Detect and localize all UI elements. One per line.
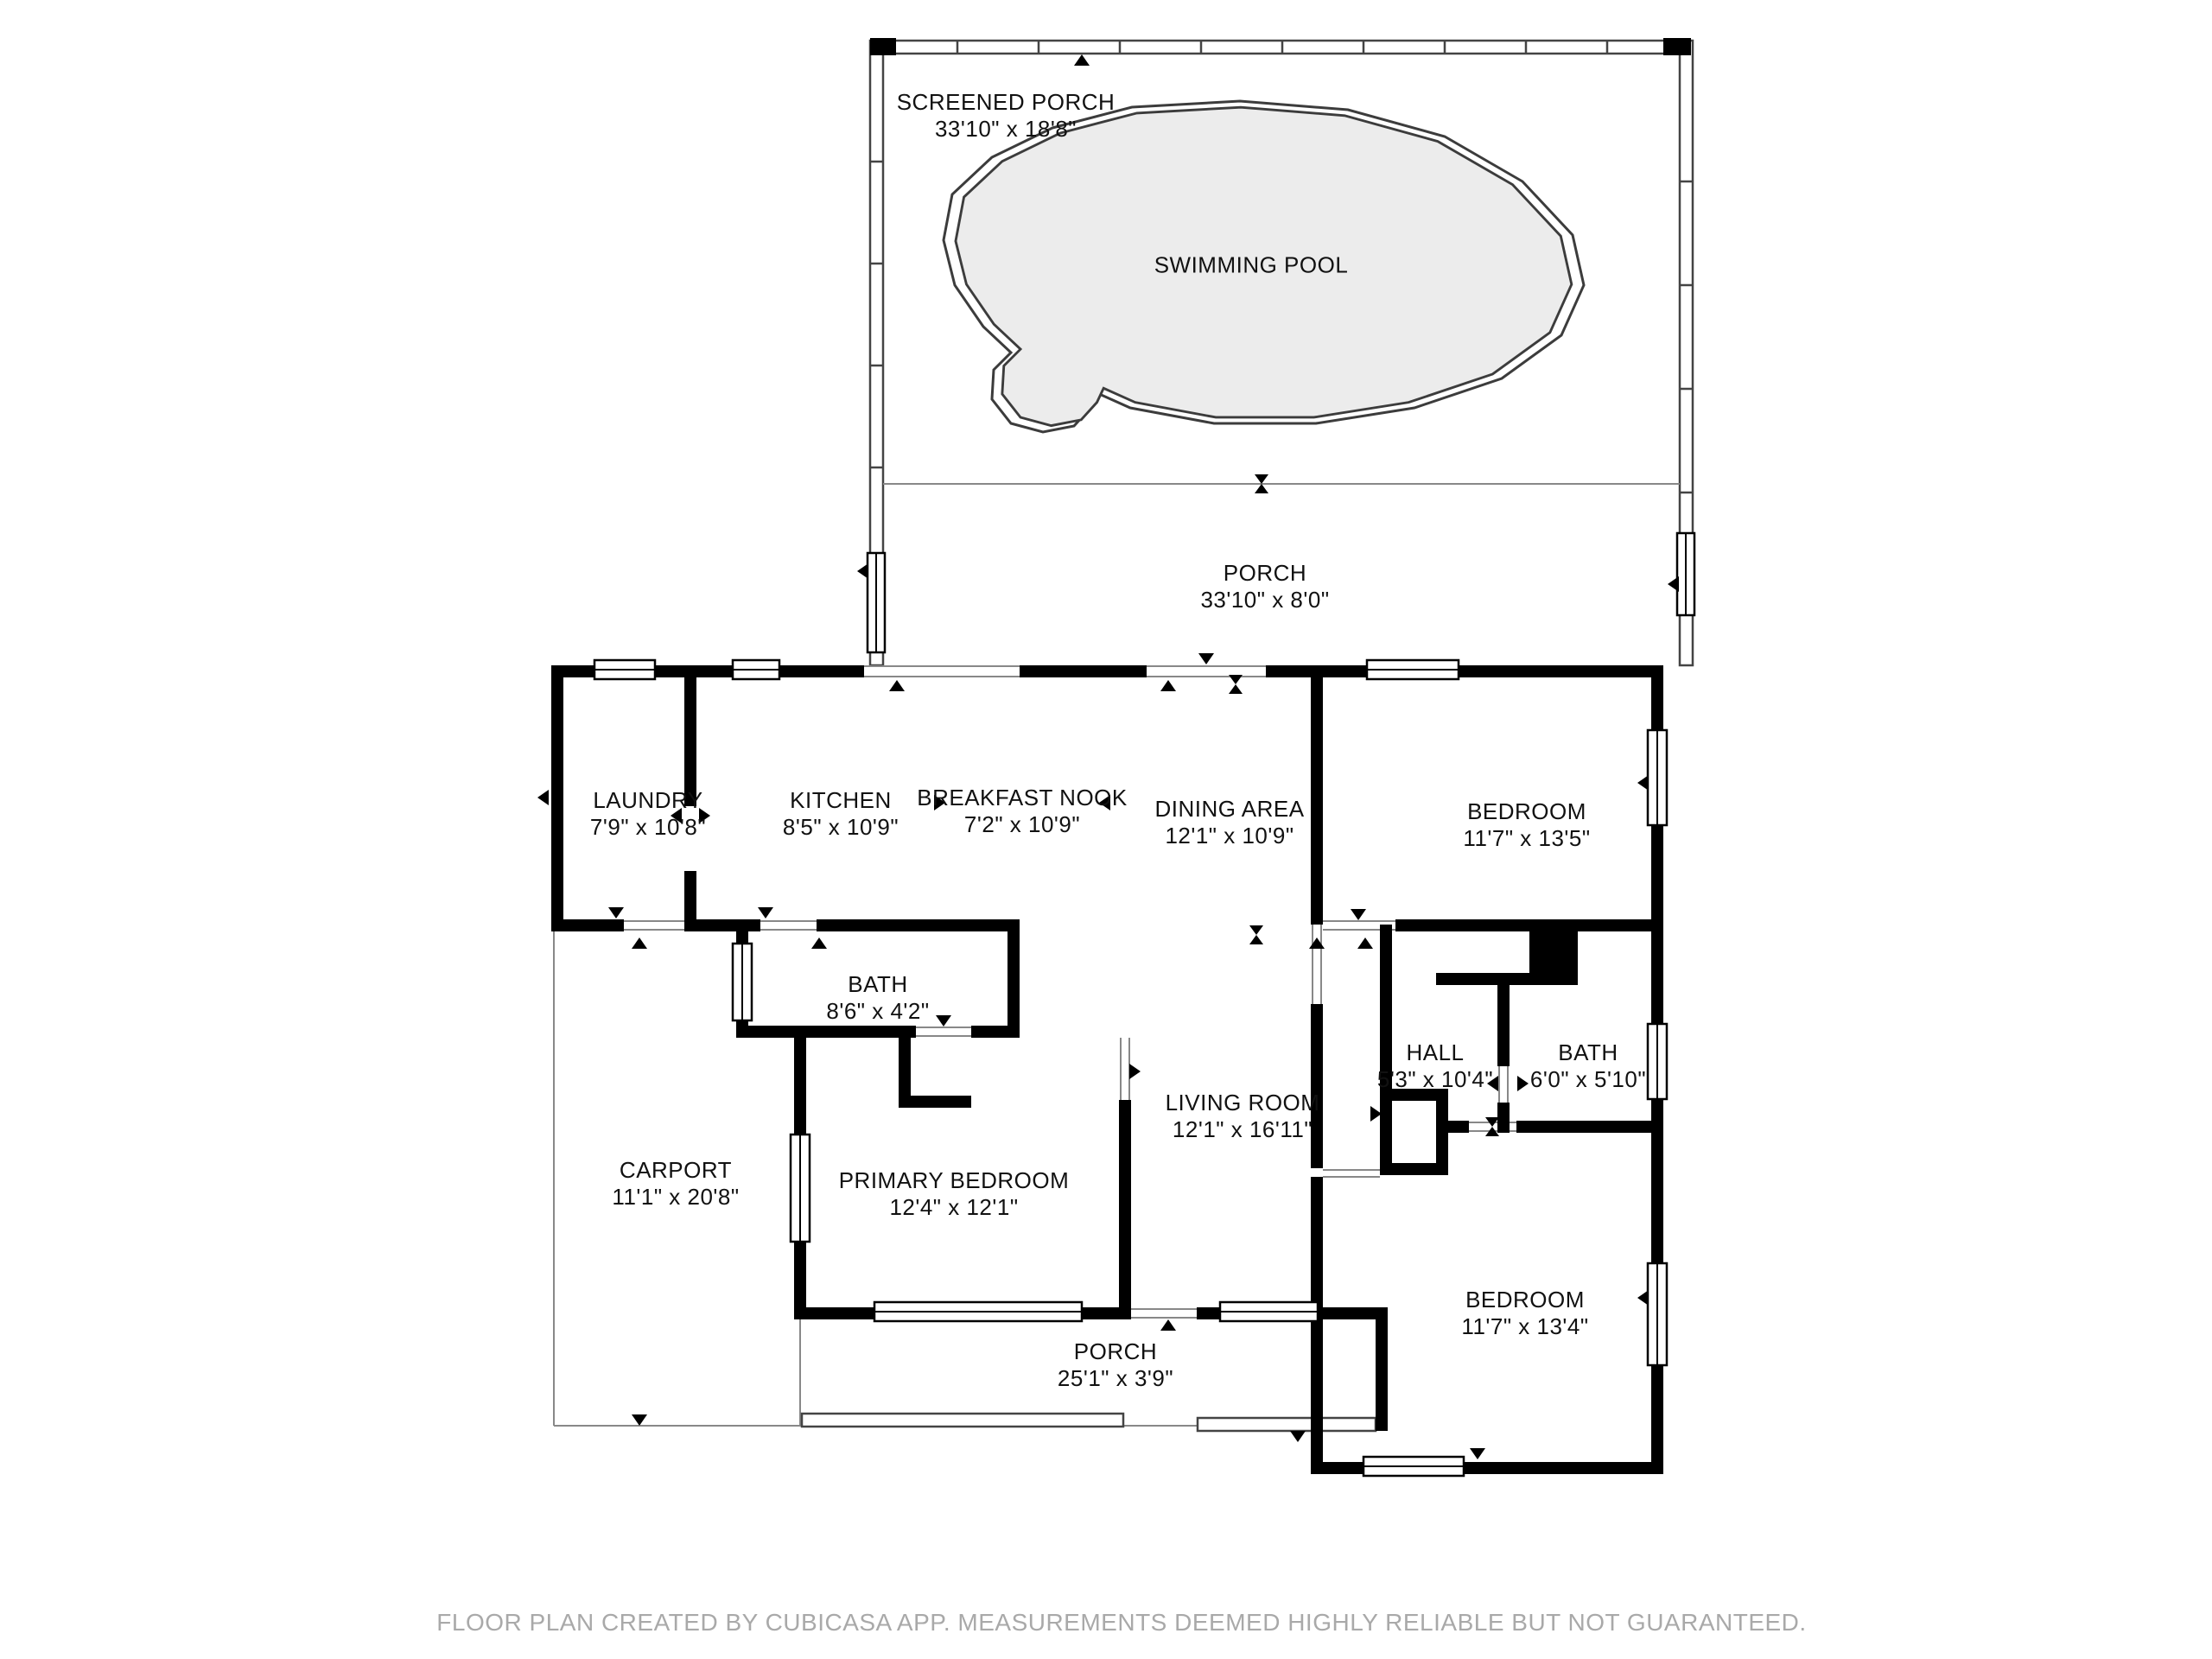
room-name: SWIMMING POOL (1154, 252, 1349, 279)
room-label-laundry: LAUNDRY 7'9" x 10'8" (590, 787, 706, 841)
door-arrow-icon (632, 938, 647, 949)
room-name: PORCH (1058, 1338, 1173, 1365)
door-arrow-icon (608, 907, 624, 918)
room-dims: 33'10" x 18'8" (897, 116, 1116, 143)
door-arrow-icon (1637, 1290, 1649, 1306)
room-dims: 11'1" x 20'8" (612, 1184, 739, 1211)
door-arrow-icon (811, 938, 827, 949)
double-door-icon (1249, 925, 1263, 944)
room-label-bedroom-se: BEDROOM 11'7" x 13'4" (1461, 1287, 1588, 1340)
door-arrow-icon (1160, 1319, 1176, 1331)
room-label-living-room: LIVING ROOM 12'1" x 16'11" (1166, 1090, 1320, 1143)
double-door-icon (1485, 1117, 1499, 1136)
room-name: BATH (1530, 1039, 1646, 1066)
room-label-kitchen: KITCHEN 8'5" x 10'9" (783, 787, 899, 841)
door-arrow-icon (1129, 1064, 1141, 1079)
door-arrow-icon (1290, 1431, 1306, 1442)
room-dims: 12'1" x 16'11" (1166, 1116, 1320, 1143)
door-arrow-icon (1357, 938, 1373, 949)
room-name: BEDROOM (1463, 798, 1590, 825)
room-name: CARPORT (612, 1157, 739, 1184)
door-arrow-icon (1309, 938, 1325, 949)
porch-steps (802, 1414, 1376, 1431)
room-name: PRIMARY BEDROOM (839, 1167, 1070, 1194)
door-arrow-icon (632, 1414, 647, 1426)
room-label-hall: HALL 5'3" x 10'4" (1377, 1039, 1493, 1093)
room-dims: 8'5" x 10'9" (783, 814, 899, 841)
room-label-porch-bottom: PORCH 25'1" x 3'9" (1058, 1338, 1173, 1392)
room-dims: 7'9" x 10'8" (590, 814, 706, 841)
room-label-bath-right: BATH 6'0" x 5'10" (1530, 1039, 1646, 1093)
room-dims: 11'7" x 13'5" (1463, 825, 1590, 852)
room-label-dining-area: DINING AREA 12'1" x 10'9" (1154, 796, 1304, 849)
room-name: BREAKFAST NOOK (917, 785, 1127, 811)
footer-disclaimer: FLOOR PLAN CREATED BY CUBICASA APP. MEAS… (436, 1609, 1806, 1637)
door-arrow-icon (1074, 54, 1090, 66)
double-door-icon (1229, 675, 1243, 694)
door-arrow-icon (857, 563, 868, 579)
room-dims: 7'2" x 10'9" (917, 811, 1127, 838)
room-dims: 11'7" x 13'4" (1461, 1313, 1588, 1340)
room-name: BEDROOM (1461, 1287, 1588, 1313)
room-name: LIVING ROOM (1166, 1090, 1320, 1116)
room-dims: 8'6" x 4'2" (826, 998, 929, 1025)
room-name: LAUNDRY (590, 787, 706, 814)
room-label-screened-porch: SCREENED PORCH 33'10" x 18'8" (897, 89, 1116, 143)
room-dims: 12'4" x 12'1" (839, 1194, 1070, 1221)
door-arrow-icon (1517, 1076, 1529, 1091)
floorplan-page: SCREENED PORCH 33'10" x 18'8" SWIMMING P… (0, 0, 2212, 1659)
door-arrow-icon (1668, 576, 1679, 592)
room-name: KITCHEN (783, 787, 899, 814)
room-dims: 5'3" x 10'4" (1377, 1066, 1493, 1093)
room-label-porch-top: PORCH 33'10" x 8'0" (1200, 560, 1329, 613)
room-name: SCREENED PORCH (897, 89, 1116, 116)
room-dims: 33'10" x 8'0" (1200, 587, 1329, 613)
room-name: PORCH (1200, 560, 1329, 587)
thin-lines (554, 484, 1680, 1426)
room-label-bedroom-ne: BEDROOM 11'7" x 13'5" (1463, 798, 1590, 852)
door-arrow-icon (1160, 680, 1176, 691)
door-arrow-icon (1351, 909, 1366, 920)
door-arrow-icon (1637, 775, 1649, 791)
room-name: HALL (1377, 1039, 1493, 1066)
door-arrow-icon (1470, 1448, 1485, 1459)
room-dims: 6'0" x 5'10" (1530, 1066, 1646, 1093)
room-dims: 25'1" x 3'9" (1058, 1365, 1173, 1392)
room-name: BATH (826, 971, 929, 998)
room-label-breakfast-nook: BREAKFAST NOOK 7'2" x 10'9" (917, 785, 1127, 838)
door-arrow-icon (758, 907, 773, 918)
door-arrow-icon (537, 790, 549, 805)
room-name: DINING AREA (1154, 796, 1304, 823)
room-label-carport: CARPORT 11'1" x 20'8" (612, 1157, 739, 1211)
room-dims: 12'1" x 10'9" (1154, 823, 1304, 849)
door-arrow-icon (936, 1015, 951, 1027)
room-label-bath-left: BATH 8'6" x 4'2" (826, 971, 929, 1025)
room-label-swimming-pool: SWIMMING POOL (1154, 252, 1349, 279)
door-arrow-icon (1198, 653, 1214, 664)
door-arrow-icon (889, 680, 905, 691)
room-label-primary-bedroom: PRIMARY BEDROOM 12'4" x 12'1" (839, 1167, 1070, 1221)
